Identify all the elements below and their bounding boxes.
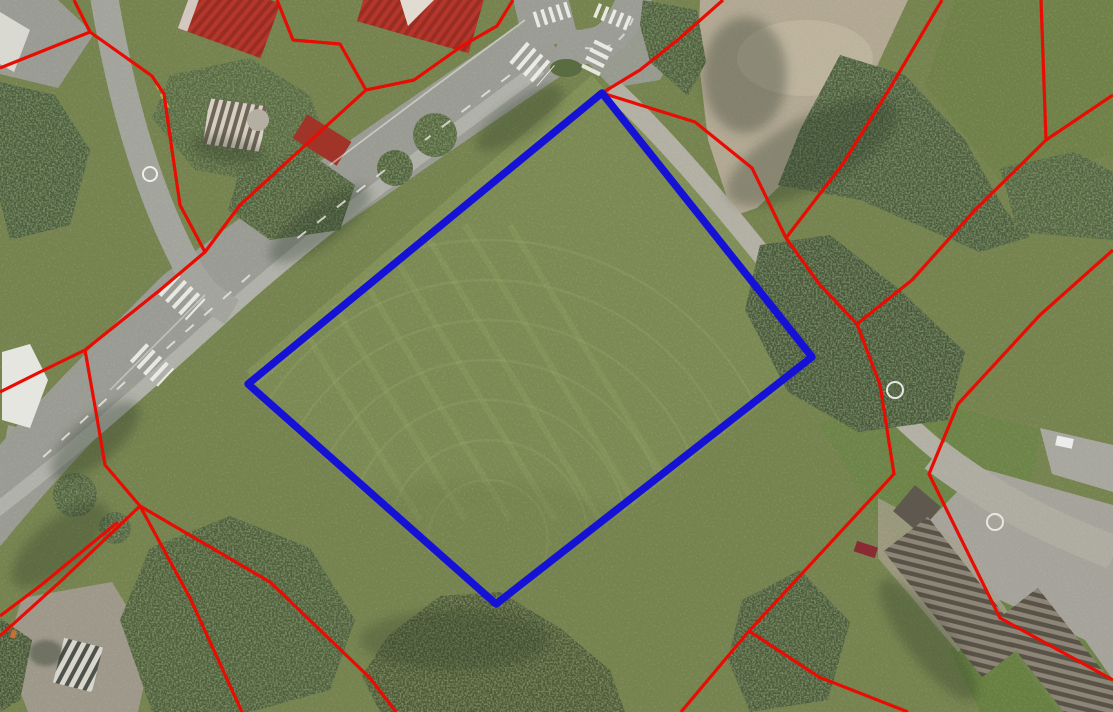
shadow-trees-bottom [360,610,550,670]
aerial-orthophoto-map[interactable] [0,0,1113,712]
bush-roadside-2 [377,150,413,186]
bush-ne-corner [641,14,669,42]
shadow-gravel-2 [703,17,787,133]
shadow-pad-structure [29,640,63,666]
woods-top-right-2 [1000,152,1113,240]
gray-dome [247,109,269,131]
map-viewport[interactable] [0,0,1113,712]
bush-roadside-1 [413,113,457,157]
traffic-island [550,59,582,77]
